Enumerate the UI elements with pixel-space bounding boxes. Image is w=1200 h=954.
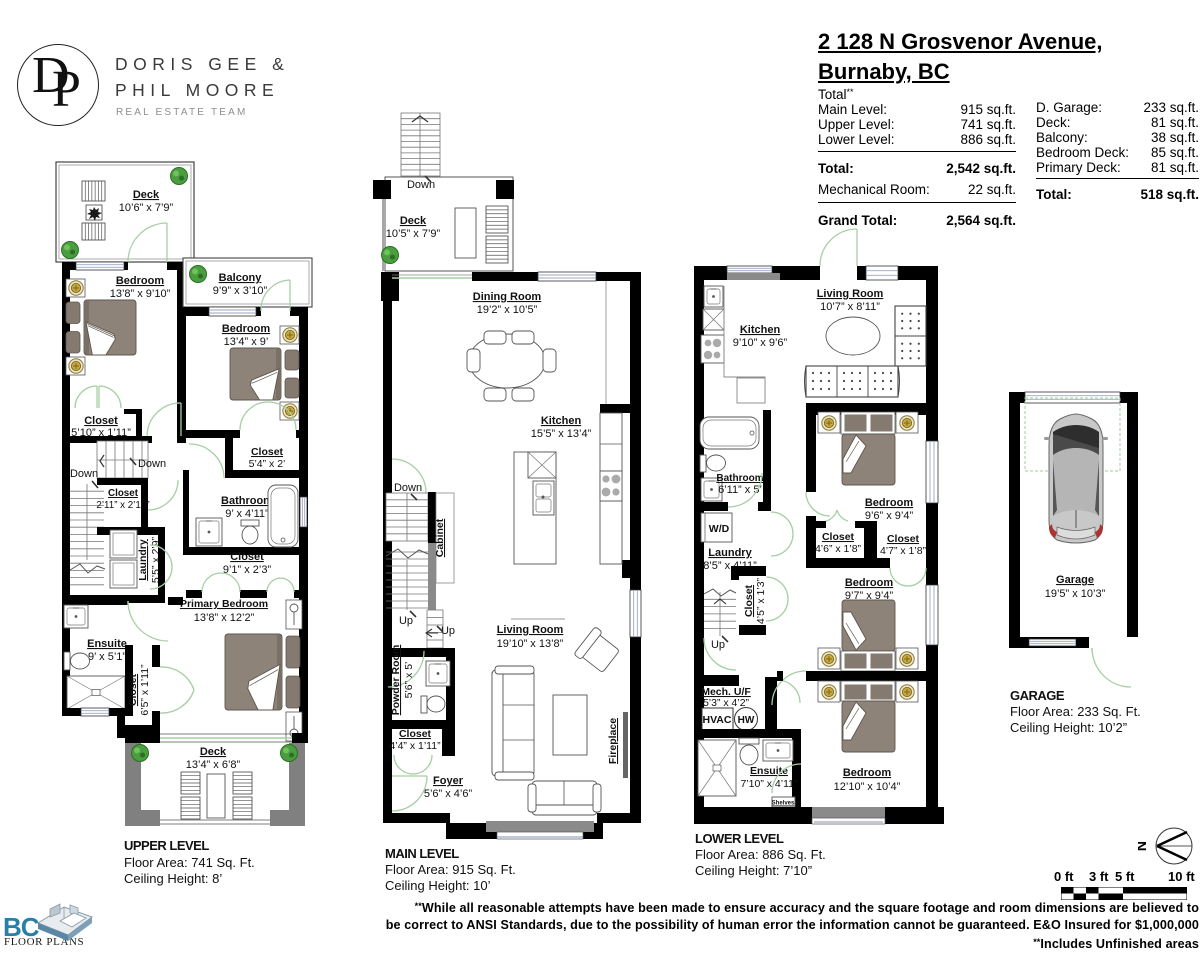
svg-text:Fireplace: Fireplace (607, 718, 619, 764)
svg-text:Closet: Closet (230, 551, 264, 563)
svg-text:N: N (1138, 841, 1149, 851)
svg-text:2’11” x 2’10”: 2’11” x 2’10” (96, 500, 149, 511)
svg-text:5’4” x 2’: 5’4” x 2’ (249, 458, 286, 470)
svg-text:Garage: Garage (1056, 574, 1094, 586)
svg-text:Laundry: Laundry (137, 539, 149, 581)
svg-text:Ensuite: Ensuite (87, 638, 127, 650)
svg-text:Floor Area: 233 Sq. Ft.: Floor Area: 233 Sq. Ft. (1010, 704, 1141, 719)
svg-text:Floor Area: 741 Sq. Ft.: Floor Area: 741 Sq. Ft. (124, 855, 255, 870)
svg-text:4’4” x 1’11”: 4’4” x 1’11” (389, 740, 441, 752)
svg-text:Deck: Deck (200, 746, 227, 758)
svg-text:Balcony: Balcony (219, 272, 263, 284)
svg-text:19’10” x 13’8”: 19’10” x 13’8” (497, 638, 564, 650)
svg-text:Bathroom: Bathroom (716, 473, 763, 484)
svg-text:Kitchen: Kitchen (541, 415, 582, 427)
svg-text:Laundry: Laundry (708, 547, 752, 559)
svg-text:19’5” x 10’3”: 19’5” x 10’3” (1045, 588, 1106, 600)
svg-text:Closet: Closet (127, 673, 139, 706)
svg-text:GARAGE: GARAGE (1010, 688, 1065, 703)
svg-text:Floor Area: 915 Sq. Ft.: Floor Area: 915 Sq. Ft. (385, 862, 516, 877)
svg-text:Up: Up (711, 639, 725, 651)
svg-text:5’6” x 4’6”: 5’6” x 4’6” (424, 788, 473, 800)
svg-text:13’8” x 9’10”: 13’8” x 9’10” (110, 288, 171, 300)
svg-text:Down: Down (70, 468, 98, 480)
svg-text:9’6” x 9’4”: 9’6” x 9’4” (865, 510, 914, 522)
svg-text:Bedroom: Bedroom (845, 577, 894, 589)
svg-text:Deck: Deck (400, 215, 427, 227)
svg-text:Ceiling Height: 10’: Ceiling Height: 10’ (385, 878, 491, 893)
svg-text:Bedroom: Bedroom (116, 275, 165, 287)
svg-text:Living Room: Living Room (817, 288, 884, 300)
svg-text:4’5” x 1’3”: 4’5” x 1’3” (755, 577, 767, 624)
svg-text:Bedroom: Bedroom (865, 497, 914, 509)
svg-text:Down: Down (138, 458, 166, 470)
svg-text:13’4” x 6’8”: 13’4” x 6’8” (186, 759, 241, 771)
svg-text:Floor Area: 886 Sq. Ft.: Floor Area: 886 Sq. Ft. (695, 847, 826, 862)
svg-text:MAIN LEVEL: MAIN LEVEL (385, 846, 459, 861)
svg-text:W/D: W/D (709, 523, 730, 535)
svg-text:15’5” x 13’4”: 15’5” x 13’4” (531, 428, 592, 440)
svg-text:19’2” x 10’5”: 19’2” x 10’5” (477, 304, 538, 316)
svg-text:Bedroom: Bedroom (843, 767, 892, 779)
svg-text:HW: HW (738, 715, 755, 726)
svg-text:Closet: Closet (822, 531, 855, 543)
svg-text:Shelves: Shelves (772, 801, 795, 807)
svg-text:Primary Bedroom: Primary Bedroom (180, 598, 268, 610)
svg-text:Closet: Closet (887, 533, 920, 545)
svg-text:13’4” x 9’: 13’4” x 9’ (224, 336, 269, 348)
svg-text:4’7” x 1’8”: 4’7” x 1’8” (880, 545, 927, 557)
svg-text:Down: Down (394, 482, 422, 494)
svg-text:LOWER LEVEL: LOWER LEVEL (695, 831, 784, 846)
svg-text:Bedroom: Bedroom (222, 323, 271, 335)
svg-text:Kitchen: Kitchen (740, 324, 781, 336)
svg-text:Up: Up (399, 615, 413, 627)
svg-text:Ceiling Height: 10’2”: Ceiling Height: 10’2” (1010, 720, 1127, 735)
svg-text:Living Room: Living Room (497, 624, 564, 636)
svg-text:Powder Room: Powder Room (390, 645, 402, 716)
svg-text:Closet: Closet (399, 728, 432, 740)
svg-text:9’ x 5’1”: 9’ x 5’1” (88, 651, 126, 663)
svg-text:Ceiling Height: 7’10”: Ceiling Height: 7’10” (695, 863, 812, 878)
svg-text:Dining Room: Dining Room (473, 291, 542, 303)
svg-text:Closet: Closet (84, 415, 118, 427)
svg-text:Cabinet: Cabinet (434, 518, 446, 557)
svg-text:9’ x 4’11”: 9’ x 4’11” (225, 508, 269, 520)
svg-text:HVAC: HVAC (703, 714, 732, 726)
svg-text:UPPER LEVEL: UPPER LEVEL (124, 838, 209, 853)
svg-text:Closet: Closet (251, 446, 284, 458)
svg-text:Bathroom: Bathroom (221, 495, 273, 507)
svg-text:9’1” x 2’3”: 9’1” x 2’3” (223, 564, 272, 576)
svg-text:Closet: Closet (108, 488, 139, 499)
svg-text:9’9” x 3’10”: 9’9” x 3’10” (213, 285, 268, 297)
svg-text:10’6” x 7’9”: 10’6” x 7’9” (119, 202, 174, 214)
svg-text:4’6” x 1’8”: 4’6” x 1’8” (815, 543, 862, 555)
svg-text:10’7” x 8’11”: 10’7” x 8’11” (820, 301, 880, 313)
svg-text:10’5” x 7’9”: 10’5” x 7’9” (386, 228, 441, 240)
svg-text:Ceiling Height: 8’: Ceiling Height: 8’ (124, 871, 222, 886)
svg-text:9’10” x 9’6”: 9’10” x 9’6” (733, 337, 788, 349)
svg-text:Deck: Deck (133, 189, 160, 201)
svg-text:5’3” x 4’2”: 5’3” x 4’2” (703, 697, 750, 709)
svg-text:Foyer: Foyer (433, 775, 464, 787)
svg-text:5’6” x 5’: 5’6” x 5’ (403, 662, 415, 699)
svg-text:6’5” x 1’11”: 6’5” x 1’11” (139, 664, 151, 716)
svg-text:Closet: Closet (743, 584, 755, 617)
svg-text:7’10” x 4’11”: 7’10” x 4’11” (740, 778, 798, 790)
svg-text:13’8” x 12’2”: 13’8” x 12’2” (194, 612, 255, 624)
svg-text:12’10” x 10’4”: 12’10” x 10’4” (834, 781, 901, 793)
